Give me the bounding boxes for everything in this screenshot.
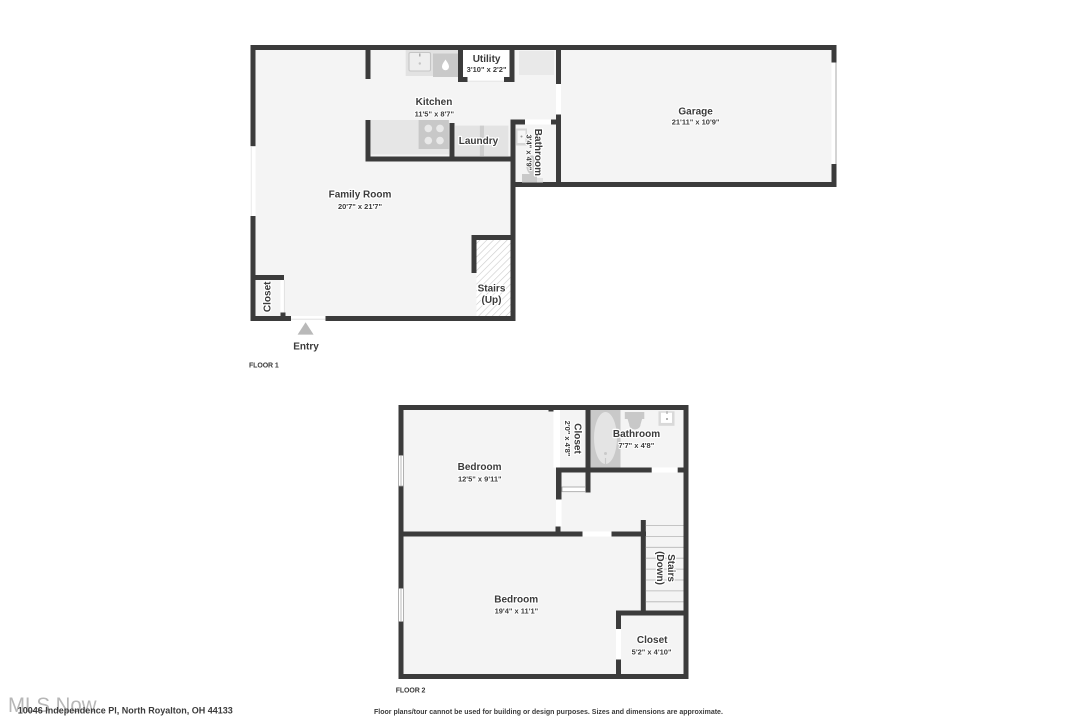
svg-text:20'7" x 21'7": 20'7" x 21'7" — [338, 202, 382, 211]
svg-text:Closet2'0" x 4'8": Closet2'0" x 4'8" — [563, 421, 583, 457]
svg-text:Family Room: Family Room — [329, 190, 392, 201]
svg-text:10046 Independence Pl, North R: 10046 Independence Pl, North Royalton, O… — [18, 706, 233, 716]
svg-text:Bathroom3'4" x 4'9": Bathroom3'4" x 4'9" — [525, 129, 543, 176]
svg-text:11'5" x 8'7": 11'5" x 8'7" — [415, 109, 455, 118]
svg-text:21'11" x 10'9": 21'11" x 10'9" — [672, 118, 720, 127]
svg-text:Garage: Garage — [678, 106, 713, 117]
svg-text:Kitchen: Kitchen — [416, 97, 453, 108]
svg-text:Laundry: Laundry — [459, 136, 499, 147]
svg-text:12'5" x 9'11": 12'5" x 9'11" — [458, 475, 502, 484]
svg-text:Entry: Entry — [293, 342, 319, 353]
svg-text:Bathroom: Bathroom — [613, 429, 660, 440]
svg-text:Stairs: Stairs — [478, 283, 506, 294]
svg-text:Bedroom: Bedroom — [458, 462, 502, 473]
svg-text:(Up): (Up) — [482, 295, 502, 306]
svg-text:Utility: Utility — [473, 54, 501, 65]
svg-text:3'10" x 2'2": 3'10" x 2'2" — [467, 65, 507, 74]
svg-text:Stairs(Down): Stairs(Down) — [654, 551, 676, 585]
svg-text:Floor plans/tour cannot be use: Floor plans/tour cannot be used for buil… — [374, 709, 723, 716]
svg-text:Closet: Closet — [263, 281, 274, 312]
svg-text:5'2" x 4'10": 5'2" x 4'10" — [632, 647, 672, 656]
svg-text:7'7" x 4'8": 7'7" x 4'8" — [619, 441, 655, 450]
svg-text:Bedroom: Bedroom — [494, 594, 538, 605]
svg-text:FLOOR 2: FLOOR 2 — [396, 688, 426, 695]
svg-text:Closet: Closet — [637, 635, 668, 646]
svg-text:19'4" x 11'1": 19'4" x 11'1" — [495, 607, 539, 616]
svg-text:FLOOR 1: FLOOR 1 — [249, 363, 279, 370]
